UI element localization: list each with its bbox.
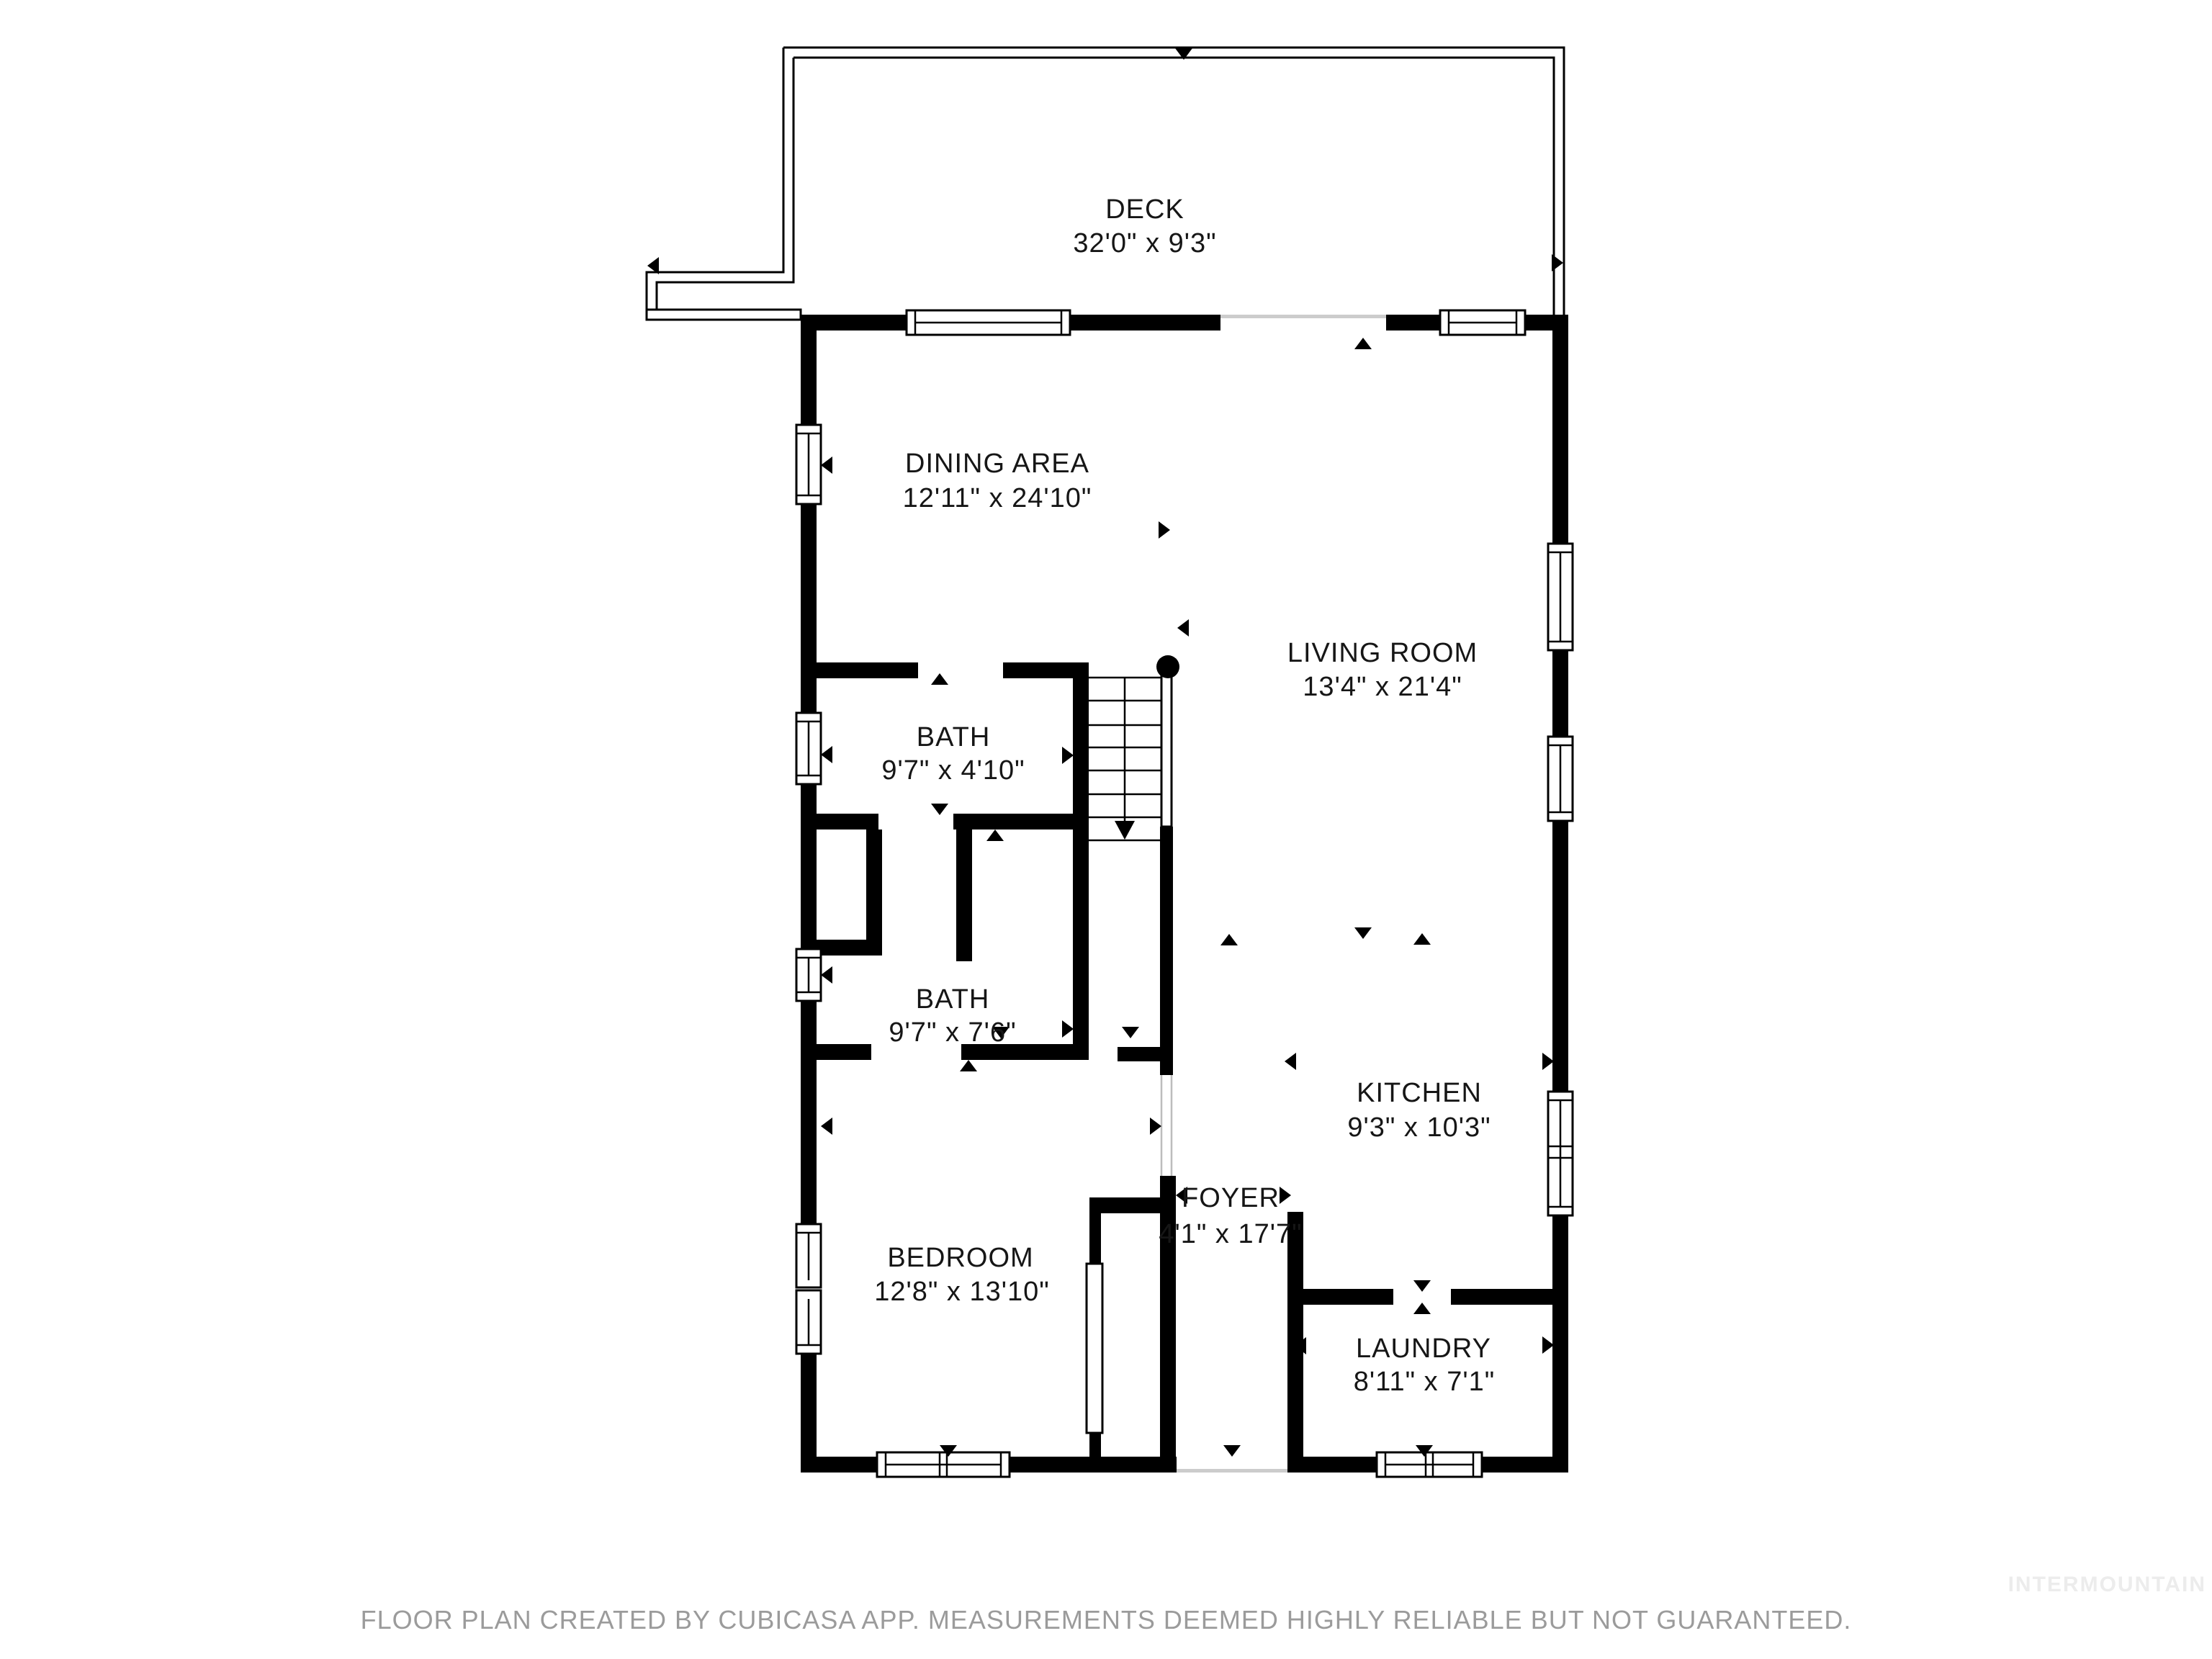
wall-segment xyxy=(1552,1215,1568,1473)
arrow-down-icon xyxy=(931,804,948,815)
closet-door xyxy=(1087,1264,1102,1433)
arrow-down-icon xyxy=(1223,1445,1241,1457)
room-name-label: BATH xyxy=(917,722,991,752)
room-dims-label: 9'7" x 7'6" xyxy=(889,1017,1016,1048)
wall-segment xyxy=(1010,1457,1177,1473)
window xyxy=(1548,737,1573,821)
window xyxy=(1440,310,1525,335)
arrow-right-icon xyxy=(1062,747,1074,764)
room-dims-label: 4'1" x 17'7" xyxy=(1159,1219,1302,1249)
wall-segment xyxy=(1160,842,1173,1075)
arrow-down-icon xyxy=(1122,1027,1139,1038)
arrow-up-icon xyxy=(931,673,948,685)
arrow-right-icon xyxy=(1542,1053,1554,1070)
wall-segment xyxy=(817,662,918,678)
arrow-up-icon xyxy=(1220,934,1238,945)
window xyxy=(1548,544,1573,650)
arrow-left-icon xyxy=(1177,619,1189,637)
wall-segment xyxy=(801,1001,817,1224)
window xyxy=(796,713,821,784)
wall-segment xyxy=(1070,315,1220,331)
arrow-right-icon xyxy=(1542,1336,1554,1354)
room-name-label: KITCHEN xyxy=(1357,1078,1482,1108)
wall-segment xyxy=(817,1044,871,1060)
wall-segment xyxy=(801,504,817,713)
wall-segment xyxy=(953,814,1089,829)
arrow-up-icon xyxy=(1413,1303,1431,1314)
wall-segment xyxy=(1451,1289,1552,1305)
arrow-up-icon xyxy=(986,829,1004,841)
arrow-left-icon xyxy=(821,966,832,984)
room-dims-label: 12'8" x 13'10" xyxy=(874,1277,1050,1307)
arrow-markers xyxy=(647,48,1563,1457)
window xyxy=(796,425,821,504)
wall-segment xyxy=(1386,315,1440,331)
room-name-label: DECK xyxy=(1105,194,1184,225)
arrow-right-icon xyxy=(1280,1187,1291,1204)
arrow-up-icon xyxy=(1354,338,1372,349)
arrow-down-icon xyxy=(1413,1280,1431,1292)
stair-newel-dot xyxy=(1156,655,1179,678)
arrow-right-icon xyxy=(1150,1118,1161,1135)
arrow-right-icon xyxy=(1552,254,1563,271)
wall-segment xyxy=(1552,315,1568,544)
window xyxy=(877,1452,1010,1477)
wall-segment xyxy=(801,1354,817,1473)
arrow-left-icon xyxy=(821,457,832,474)
wall-segment xyxy=(956,829,972,961)
disclaimer-text: FLOOR PLAN CREATED BY CUBICASA APP. MEAS… xyxy=(361,1605,1852,1635)
arrow-left-icon xyxy=(1285,1053,1296,1070)
room-name-label: FOYER xyxy=(1182,1183,1280,1213)
room-dims-label: 9'7" x 4'10" xyxy=(881,755,1025,786)
arrow-left-icon xyxy=(821,1118,832,1135)
wall-segment xyxy=(817,814,878,829)
room-name-label: BEDROOM xyxy=(887,1243,1033,1273)
room-name-label: DINING AREA xyxy=(905,449,1089,479)
arrow-right-icon xyxy=(1062,1020,1074,1038)
arrow-left-icon xyxy=(821,746,832,763)
wall-segment xyxy=(866,829,882,956)
room-dims-label: 32'0" x 9'3" xyxy=(1073,228,1216,258)
deck-railing xyxy=(647,310,801,320)
wall-segment xyxy=(1089,1197,1174,1213)
room-name-label: LAUNDRY xyxy=(1356,1334,1491,1364)
arrow-up-icon xyxy=(1413,933,1431,945)
wall-segment xyxy=(817,940,882,956)
wall-segment xyxy=(1160,1176,1176,1457)
entry-door-opening xyxy=(1177,1469,1287,1473)
wall-segment xyxy=(1303,1289,1393,1305)
arrow-up-icon xyxy=(960,1060,977,1071)
wall-segment xyxy=(1160,827,1173,842)
wall-segment xyxy=(1089,1433,1101,1457)
wall-segment xyxy=(801,315,907,331)
stair-railing xyxy=(1161,675,1172,827)
wall-segment xyxy=(1073,662,1089,1060)
wall-segment xyxy=(1552,650,1568,737)
room-dims-label: 12'11" x 24'10" xyxy=(903,483,1092,513)
sliding-door-opening xyxy=(1220,315,1386,318)
window xyxy=(1377,1452,1482,1477)
watermark-text: INTERMOUNTAIN xyxy=(2008,1573,2206,1596)
arrow-down-icon xyxy=(1354,927,1372,939)
window xyxy=(796,1224,821,1354)
deck-outline xyxy=(647,48,1564,320)
room-dims-label: 9'3" x 10'3" xyxy=(1347,1112,1491,1143)
wall-segment xyxy=(801,784,817,949)
room-dims-label: 8'11" x 7'1" xyxy=(1354,1367,1495,1397)
wall-segment xyxy=(1118,1047,1161,1061)
staircase xyxy=(1089,655,1179,842)
floor-plan-drawing: DECK 32'0" x 9'3" DINING AREA 12'11" x 2… xyxy=(0,0,2212,1659)
wall-segment xyxy=(1552,821,1568,1092)
room-name-label: BATH xyxy=(916,984,990,1015)
floor-plan-page: DECK 32'0" x 9'3" DINING AREA 12'11" x 2… xyxy=(0,0,2212,1659)
stairs-down-arrow-icon xyxy=(1115,821,1135,840)
room-labels: DECK 32'0" x 9'3" DINING AREA 12'11" x 2… xyxy=(874,194,1495,1397)
wall-segment xyxy=(801,315,817,425)
room-dims-label: 13'4" x 21'4" xyxy=(1303,672,1462,702)
room-name-label: LIVING ROOM xyxy=(1287,638,1478,668)
wall-segment xyxy=(1287,1457,1377,1473)
window xyxy=(796,949,821,1001)
arrow-right-icon xyxy=(1159,521,1170,539)
window xyxy=(907,310,1070,335)
wall-segment xyxy=(1089,1213,1101,1264)
window xyxy=(1548,1092,1573,1215)
